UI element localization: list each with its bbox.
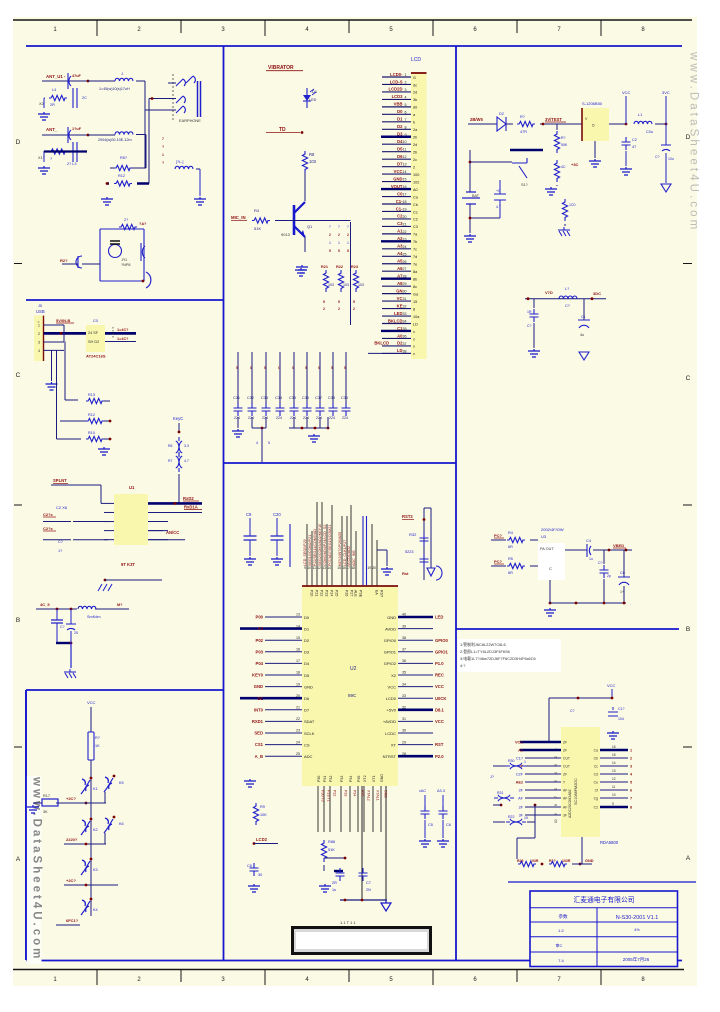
svg-text:15: 15 <box>337 566 341 570</box>
svg-text:C7: C7 <box>366 881 371 885</box>
svg-text:J?: J? <box>490 775 494 779</box>
svg-text:www.DataSheet4U.com: www.DataSheet4U.com <box>31 776 43 961</box>
svg-text:Ga: Ga <box>413 292 419 296</box>
svg-text:4%: 4% <box>634 928 640 932</box>
svg-text:www.DataSheet4U.com: www.DataSheet4U.com <box>688 51 700 232</box>
svg-text:VIBRATOR: VIBRATOR <box>268 65 294 71</box>
svg-text:27: 27 <box>403 267 407 271</box>
svg-text:2?: 2? <box>124 218 128 222</box>
svg-text:RST: RST <box>435 742 444 747</box>
svg-text:GPIO2: GPIO2 <box>384 661 397 666</box>
svg-text:19: 19 <box>367 566 371 570</box>
svg-text:P33: P33 <box>340 776 344 782</box>
svg-text:A0: A0 <box>413 188 418 192</box>
svg-text:5: 5 <box>338 300 340 304</box>
svg-text:C?: C? <box>655 155 660 159</box>
svg-text:BKLCD: BKLCD <box>388 318 403 323</box>
svg-text:C3: C3 <box>413 225 418 229</box>
svg-text:1R: 1R <box>527 310 532 314</box>
svg-text:ZF: ZF <box>563 773 567 777</box>
svg-text:R7: R7 <box>168 459 173 463</box>
svg-text:47: 47 <box>632 145 636 149</box>
svg-text:8: 8 <box>405 125 407 129</box>
svg-text:K1: K1 <box>93 787 98 791</box>
svg-text:16: 16 <box>403 185 407 189</box>
svg-text:17: 17 <box>296 659 300 663</box>
svg-text:P03: P03 <box>256 649 264 654</box>
svg-text:2002/4F/OW: 2002/4F/OW <box>541 527 564 532</box>
svg-text:C36: C36 <box>302 396 309 400</box>
svg-text:Cc: Cc <box>594 765 598 769</box>
svg-text:89C: 89C <box>348 693 357 698</box>
svg-text:P31/T1: P31/T1 <box>327 790 331 802</box>
svg-text:ALE: ALE <box>354 590 358 597</box>
svg-text:VBED: VBED <box>613 543 624 548</box>
svg-text:36: 36 <box>403 334 407 338</box>
svg-text:R8: R8 <box>309 152 315 157</box>
svg-text:2F: 2F <box>519 806 524 810</box>
svg-text:PA OUT: PA OUT <box>540 547 554 551</box>
svg-text:VCC: VCC <box>435 719 444 724</box>
svg-text:ANT_: ANT_ <box>46 127 58 132</box>
svg-text:SCLK: SCLK <box>304 731 315 736</box>
svg-text:3DC: 3DC <box>593 291 601 296</box>
svg-text:P25: P25 <box>335 590 339 596</box>
svg-text:38: 38 <box>403 349 407 353</box>
svg-text:2R: 2R <box>332 881 337 885</box>
svg-text:D3: D3 <box>397 132 403 137</box>
svg-text:1: 1 <box>329 241 331 245</box>
svg-text:L4: L4 <box>52 88 56 92</box>
svg-text:R88: R88 <box>328 840 335 844</box>
svg-text:40: 40 <box>402 613 406 617</box>
svg-text:VCC: VCC <box>622 90 631 95</box>
svg-text:COM0/AD4/P24/LCD_S2: COM0/AD4/P24/LCD_S2 <box>323 525 327 566</box>
svg-text:REC: REC <box>435 673 444 678</box>
svg-text:4: 4 <box>405 95 407 99</box>
svg-text:M?: M? <box>117 603 123 607</box>
svg-text:4C: 4C <box>561 165 566 169</box>
svg-text:1: 1 <box>338 241 340 245</box>
svg-text:VCC: VCC <box>515 741 523 745</box>
svg-text:LED: LED <box>435 615 443 620</box>
svg-text:.: . <box>630 601 631 606</box>
svg-text:R5: R5 <box>508 557 513 561</box>
svg-text:224: 224 <box>276 416 282 420</box>
svg-text:GND: GND <box>384 790 388 798</box>
svg-text:S1?: S1? <box>521 183 528 187</box>
svg-text:C39: C39 <box>341 396 348 400</box>
svg-text:SH D2: SH D2 <box>88 340 99 344</box>
svg-text:C4: C4 <box>586 539 591 543</box>
svg-text:VCC: VCC <box>607 683 616 688</box>
svg-text:T: T <box>563 781 565 785</box>
svg-text:P27: P27 <box>350 590 354 596</box>
svg-text:29: 29 <box>403 282 407 286</box>
svg-text:0: 0 <box>250 366 252 370</box>
svg-text:AVDD: AVDD <box>385 626 396 631</box>
svg-text:2004(w)00-10E-12m: 2004(w)00-10E-12m <box>98 138 132 142</box>
svg-text:x: x <box>413 330 415 334</box>
svg-text:3: 3 <box>405 88 407 92</box>
svg-text:1K: 1K <box>524 816 529 820</box>
svg-text:GPIO0: GPIO0 <box>435 638 448 643</box>
svg-text:103: 103 <box>309 159 317 164</box>
svg-text:AF: AF <box>518 797 524 801</box>
svg-text:J5: J5 <box>38 304 42 308</box>
svg-text:9: 9 <box>612 802 614 806</box>
svg-text:审C: 审C <box>556 942 563 948</box>
svg-text:7: 7 <box>338 225 340 229</box>
svg-text:10: 10 <box>612 793 616 797</box>
svg-text:10K: 10K <box>260 813 267 817</box>
svg-text:x: x <box>413 337 415 341</box>
svg-text:C20: C20 <box>273 512 281 517</box>
svg-text:P20: P20 <box>310 590 314 596</box>
svg-text:C37: C37 <box>315 396 322 400</box>
svg-text:C1?: C1? <box>516 757 523 761</box>
svg-text:28: 28 <box>403 275 407 279</box>
svg-text:VBB: VBB <box>394 102 403 107</box>
svg-text:D1: D1 <box>304 626 310 631</box>
svg-text:AT24C16S: AT24C16S <box>86 354 106 359</box>
svg-text:?: ? <box>50 157 52 161</box>
svg-text:24 SF: 24 SF <box>88 331 99 335</box>
svg-text:?: ? <box>162 161 164 165</box>
svg-text:Cf: Cf <box>595 789 598 793</box>
svg-text:2: 2 <box>338 233 340 237</box>
svg-text:18: 18 <box>351 566 355 570</box>
svg-text:2F: 2F <box>519 789 524 793</box>
svg-text:1: 1 <box>405 73 407 77</box>
svg-text:224: 224 <box>262 416 268 420</box>
svg-text:1: 1 <box>162 153 164 157</box>
svg-text:P35: P35 <box>361 790 365 796</box>
svg-text:20: 20 <box>372 566 376 570</box>
svg-text:6R: 6R <box>508 545 513 549</box>
svg-text:35: 35 <box>402 671 406 675</box>
svg-text:224: 224 <box>290 416 296 420</box>
svg-text:14: 14 <box>403 170 407 174</box>
svg-text:18: 18 <box>403 200 407 204</box>
svg-text:11: 11 <box>313 566 317 570</box>
svg-text:GND: GND <box>585 859 594 863</box>
svg-text:SEG10/COM2/P21: SEG10/COM2/P21 <box>308 535 312 566</box>
svg-text:RxD1A: RxD1A <box>184 505 198 510</box>
svg-text:4: 4 <box>38 349 40 353</box>
svg-text:X2: X2 <box>39 102 44 106</box>
svg-text:R4: R4 <box>508 531 513 535</box>
svg-text:103: 103 <box>328 283 334 287</box>
svg-text:LCD0: LCD0 <box>386 696 397 701</box>
svg-text:16: 16 <box>296 648 300 652</box>
svg-text:33: 33 <box>402 694 406 698</box>
svg-text:17: 17 <box>346 566 350 570</box>
svg-text:0: 0 <box>318 366 320 370</box>
svg-text:P30/T0: P30/T0 <box>321 790 325 802</box>
svg-text:P2.0: P2.0 <box>435 754 444 759</box>
svg-text:BAT: BAT <box>472 194 480 198</box>
svg-text:29: 29 <box>402 740 406 744</box>
svg-text:34: 34 <box>402 682 406 686</box>
svg-text:13: 13 <box>296 613 300 617</box>
svg-text:15: 15 <box>403 178 407 182</box>
svg-text:25: 25 <box>74 631 78 635</box>
svg-text:D2: D2 <box>499 112 504 116</box>
svg-text:C?: C? <box>570 709 575 713</box>
svg-text:2C: 2C <box>82 96 87 100</box>
svg-text:K4: K4 <box>93 908 98 912</box>
svg-text:BKLCD: BKLCD <box>374 340 389 345</box>
svg-text:LCD-S: LCD-S <box>390 79 403 84</box>
svg-text:C35: C35 <box>289 396 296 400</box>
svg-text:C0: C0 <box>93 319 98 323</box>
svg-text:LCD2: LCD2 <box>256 837 268 842</box>
svg-text:x: x <box>413 345 415 349</box>
svg-text:XT2: XT2 <box>363 775 367 782</box>
svg-text:GPIO0: GPIO0 <box>384 638 397 643</box>
svg-text:5: 5 <box>329 249 331 253</box>
svg-text:1K: 1K <box>95 744 100 748</box>
svg-text:U1: U1 <box>129 485 135 490</box>
svg-text:5223: 5223 <box>405 550 413 554</box>
svg-text:19: 19 <box>296 682 300 686</box>
svg-text:5: 5 <box>305 366 307 370</box>
svg-text:12: 12 <box>612 777 616 781</box>
svg-text:1: 1 <box>524 760 526 764</box>
svg-text:EARPHONE: EARPHONE <box>179 118 201 123</box>
svg-text:102: 102 <box>413 180 419 184</box>
svg-text:C2F: C2F <box>516 773 524 777</box>
svg-text:5: 5 <box>344 366 346 370</box>
svg-text:+2C?: +2C? <box>66 878 76 883</box>
svg-text:24: 24 <box>403 245 407 249</box>
svg-text:b: b <box>413 121 415 125</box>
svg-text:C2?x: C2?x <box>43 526 54 531</box>
svg-text:CUT: CUT <box>563 765 570 769</box>
svg-text:RDA5800: RDA5800 <box>600 840 619 845</box>
svg-text:1.1 T 1 1: 1.1 T 1 1 <box>340 920 356 925</box>
svg-text:D7: D7 <box>304 708 310 713</box>
svg-text:K6: K6 <box>119 822 124 826</box>
svg-text:4C_5: 4C_5 <box>40 602 50 607</box>
svg-text:C2?x: C2?x <box>43 512 54 517</box>
svg-text:R12: R12 <box>88 413 95 417</box>
svg-text:32: 32 <box>402 706 406 710</box>
svg-text:R?: R? <box>520 115 525 119</box>
svg-text:C9: C9 <box>246 512 252 517</box>
svg-text:25: 25 <box>403 252 407 256</box>
svg-text:1?uF: 1?uF <box>72 127 82 131</box>
svg-text:SPLNT: SPLNT <box>53 478 67 483</box>
svg-text:USB: USB <box>36 309 45 314</box>
svg-text:C?: C? <box>58 540 63 544</box>
svg-text:3: 3 <box>630 765 632 769</box>
svg-text:D3: D3 <box>304 650 310 655</box>
svg-text:7: 7 <box>405 118 407 122</box>
svg-text:26: 26 <box>403 260 407 264</box>
svg-text:AN/CC: AN/CC <box>166 530 179 535</box>
svg-text:ZF: ZF <box>563 741 567 745</box>
svg-text:13: 13 <box>403 163 407 167</box>
svg-text:P22: P22 <box>320 590 324 596</box>
svg-text:3V/TEST: 3V/TEST <box>545 117 562 122</box>
svg-text:4:?: 4:? <box>460 663 466 668</box>
svg-text:2p: 2p <box>607 574 611 578</box>
svg-text:7: 7 <box>162 137 164 141</box>
svg-text:XTAL1: XTAL1 <box>376 790 380 801</box>
svg-text:D: D <box>16 139 21 146</box>
svg-text:R32: R32 <box>409 532 417 537</box>
svg-text:C: C <box>686 375 691 382</box>
svg-text:D4: D4 <box>304 661 310 666</box>
svg-text:VCC: VCC <box>388 684 397 689</box>
svg-text:P02: P02 <box>256 638 264 643</box>
svg-text:P1.0: P1.0 <box>435 661 444 666</box>
svg-text:SC1088FM2DC: SC1088FM2DC <box>574 778 578 805</box>
svg-text:C: C <box>549 566 552 571</box>
svg-text:R5?: R5? <box>120 156 127 160</box>
svg-text:LED: LED <box>394 311 402 316</box>
svg-text:K3: K3 <box>93 868 98 872</box>
svg-text:28: 28 <box>402 752 406 756</box>
svg-text:3F: 3F <box>563 814 567 818</box>
svg-text:R?: R? <box>95 736 100 740</box>
svg-text:C38: C38 <box>328 396 335 400</box>
svg-text:7: 7 <box>347 225 349 229</box>
svg-text:R?: R? <box>561 136 566 140</box>
svg-text:D2: D2 <box>397 124 403 129</box>
svg-text:21: 21 <box>296 706 300 710</box>
svg-text:C31: C31 <box>233 396 240 400</box>
svg-text:6FC1?: 6FC1? <box>66 918 79 923</box>
svg-text:AF: AF <box>563 797 567 801</box>
svg-text:1: 1 <box>630 749 632 753</box>
svg-text:C5: C5 <box>428 823 433 827</box>
svg-text:15: 15 <box>296 636 300 640</box>
svg-text:KeyC: KeyC <box>173 416 183 421</box>
svg-text:8c: 8c <box>413 285 417 289</box>
svg-text:19: 19 <box>403 207 407 211</box>
svg-text:B: B <box>16 617 20 624</box>
svg-text:51K: 51K <box>328 848 335 852</box>
svg-text:5: 5 <box>353 300 355 304</box>
svg-text:9: 9 <box>304 566 306 570</box>
svg-text:D1: D1 <box>258 696 264 701</box>
svg-text:8: 8 <box>554 804 558 806</box>
svg-text:P33: P33 <box>344 790 348 796</box>
svg-text:47R: 47R <box>520 130 527 134</box>
svg-text:K5: K5 <box>119 781 124 785</box>
svg-text:7: 7 <box>329 225 331 229</box>
svg-text:EA: EA <box>375 590 379 595</box>
svg-text:AF: AF <box>563 789 567 793</box>
svg-text:SDAT: SDAT <box>304 719 315 724</box>
svg-text:3:电载1L7?46w72DJ6F7F6C2D3H4F6x6: 3:电载1L7?46w72DJ6F7F6C2D3H4F6x6C6 <box>460 656 536 661</box>
svg-text:1:警制利J6C6L22W7C6L6: 1:警制利J6C6L22W7C6L6 <box>460 642 506 647</box>
svg-text:5: 5 <box>268 441 270 445</box>
svg-text:2: 2 <box>38 332 40 336</box>
svg-text:12: 12 <box>403 155 407 159</box>
svg-text:3VC: 3VC <box>662 90 670 95</box>
svg-text:A2DC2SC2M2AB2: A2DC2SC2M2AB2 <box>568 789 572 818</box>
svg-text:2:登即L1=TY6L2DJ3F4F6S6: 2:登即L1=TY6L2DJ3F4F6S6 <box>460 649 510 654</box>
svg-text:10: 10 <box>307 566 311 570</box>
svg-text:R4: R4 <box>254 208 260 213</box>
svg-text:PC?: PC? <box>494 533 503 538</box>
svg-text:VCC: VCC <box>87 700 96 705</box>
svg-text:1:2: 1:2 <box>558 928 564 933</box>
svg-text:23: 23 <box>296 729 300 733</box>
svg-text:XTAL2: XTAL2 <box>367 790 371 801</box>
svg-text:1?: 1? <box>58 549 62 553</box>
svg-text:224: 224 <box>303 416 309 420</box>
svg-text:CS1: CS1 <box>255 742 264 747</box>
svg-text:XT: XT <box>391 742 397 747</box>
svg-text:J.: J. <box>121 72 124 76</box>
svg-text:2d: 2d <box>413 91 417 95</box>
svg-text:15: 15 <box>612 753 616 757</box>
svg-text:11: 11 <box>612 785 616 789</box>
svg-text:+3C: +3C <box>571 162 579 167</box>
svg-text:3: 3 <box>38 341 40 345</box>
svg-text:C2 X6: C2 X6 <box>56 505 68 510</box>
svg-text:20: 20 <box>403 215 407 219</box>
svg-text:P30: P30 <box>317 776 321 782</box>
svg-text:5: 5 <box>630 781 632 785</box>
svg-text:C?: C? <box>598 561 603 565</box>
svg-text:V: V <box>37 321 41 323</box>
svg-text:D1: D1 <box>397 117 403 122</box>
svg-text:参数: 参数 <box>559 913 568 920</box>
svg-text:V7D: V7D <box>545 290 553 295</box>
svg-text:U0CK: U0CK <box>435 696 446 701</box>
svg-text:PSE: PSE <box>359 590 363 598</box>
svg-text:P32: P32 <box>333 790 337 796</box>
svg-text:Cd: Cd <box>594 773 598 777</box>
svg-text:d0: d0 <box>413 106 417 110</box>
svg-text:C2: C2 <box>413 218 418 222</box>
svg-text:GND: GND <box>393 176 402 181</box>
svg-text:AE2: AE2 <box>516 781 523 785</box>
svg-text:D0: D0 <box>397 109 403 114</box>
svg-text:5: 5 <box>323 300 325 304</box>
svg-text:2B/W5: 2B/W5 <box>470 117 483 122</box>
svg-text:C6: C6 <box>446 823 451 827</box>
svg-text:C?: C? <box>60 625 65 629</box>
svg-text:VLCD1/AD2: VLCD1/AD2 <box>347 546 351 566</box>
svg-text:PC?: PC? <box>494 559 503 564</box>
svg-text:Cb: Cb <box>413 203 418 207</box>
svg-text:D6: D6 <box>304 696 310 701</box>
svg-text:P04: P04 <box>256 661 264 666</box>
svg-text:2: 2 <box>323 307 325 311</box>
svg-text:10u: 10u <box>668 157 674 161</box>
svg-text:LCD0-: LCD0- <box>390 72 403 77</box>
svg-text:30: 30 <box>403 290 407 294</box>
svg-text:10: 10 <box>403 140 407 144</box>
svg-text:P21: P21 <box>315 590 319 596</box>
svg-text:C34: C34 <box>275 396 282 400</box>
svg-text:RST: RST <box>380 590 384 598</box>
svg-text:9: 9 <box>405 133 407 137</box>
svg-text:3.3: 3.3 <box>184 444 189 448</box>
svg-text:L1: L1 <box>638 113 642 117</box>
svg-text:2: 2 <box>338 307 340 311</box>
svg-text:+2C?: +2C? <box>66 796 76 801</box>
svg-text:37: 37 <box>402 648 406 652</box>
svg-text:21: 21 <box>403 222 407 226</box>
